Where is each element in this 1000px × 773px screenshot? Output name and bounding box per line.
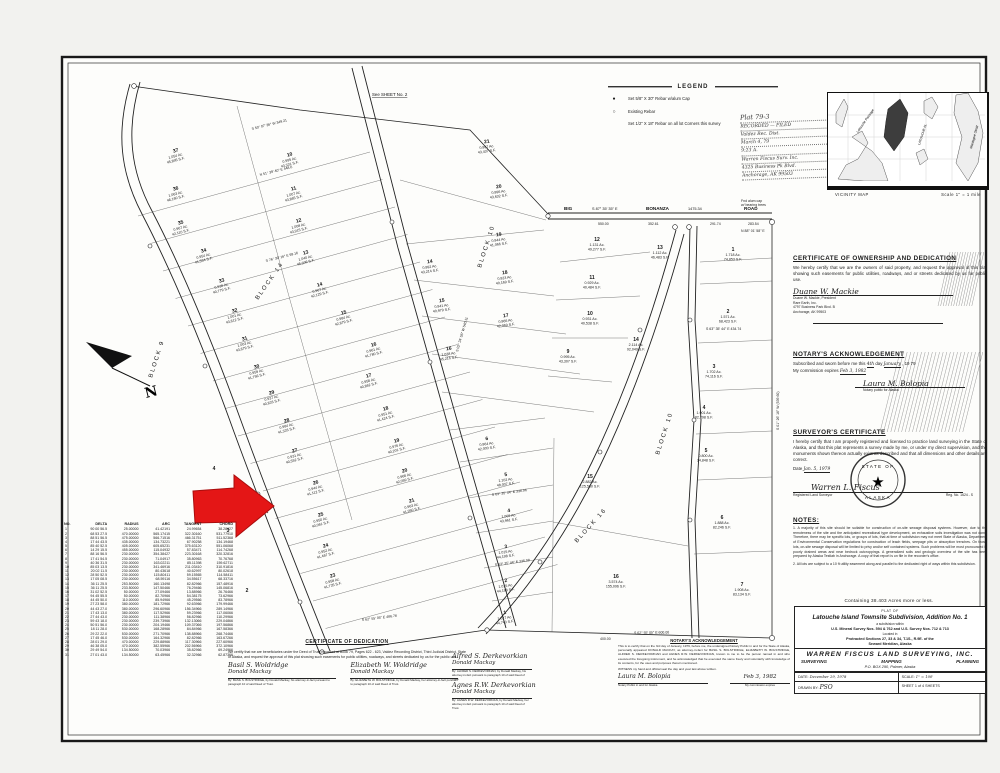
lot-square-feet: 43,307 S.F.: [559, 359, 577, 363]
date-label: Date: [793, 466, 802, 471]
curve-cell: 134.50000: [108, 653, 139, 657]
date-label: DATE:: [798, 675, 809, 679]
lot-square-feet: 34,848 S.F.: [697, 458, 715, 462]
lot-acreage: 0.800 Ac.: [699, 454, 714, 458]
bearing-label: 283.54: [748, 222, 759, 226]
legend-item: ● Set 5/8" X 30" Rebar w/alum Cap: [608, 96, 778, 103]
signer-line: Anchorage, AK 99503: [793, 310, 987, 314]
signature-typed-caption: By: ELIZABETH W. BOLSTRIDGE, by Donald M…: [350, 679, 458, 687]
lot-label: 2: [246, 588, 249, 594]
signature: Laura M. Bolopia: [863, 379, 987, 388]
lot-acreage: 2.114 Ac.: [629, 343, 644, 347]
acreage-note: Containing 38.403 Acres more or less.: [793, 598, 985, 603]
lot-square-feet: 82,798 S.F.: [695, 415, 713, 419]
lot-acreage: 0.931 Ac.: [583, 317, 598, 321]
meridian-line: Seward Meridian, Alaska: [797, 642, 983, 646]
section-title: NOTES:: [793, 517, 987, 524]
curve-cell: 32.32966: [171, 653, 202, 657]
lot-square-feet: 83,134 S.F.: [733, 592, 751, 596]
section-title: CERTIFICATE OF DEDICATION: [305, 639, 388, 645]
notary-text: Subscribed and sworn before me this: [793, 361, 865, 366]
curve-data-table: NO. DELTA RADIUS ARC TANGENT CHORD 190 0…: [64, 522, 234, 657]
lot-square-feet: 74,853 S.F.: [724, 257, 742, 261]
curve-cell: 31: [64, 653, 77, 657]
signature: Donald Mackay: [452, 660, 532, 666]
lot-square-feet: 155,096 S.F.: [606, 584, 626, 588]
signature-block: Elizabeth W. Woldridge Donald Mackay By:…: [350, 661, 458, 687]
lot-acreage: 1.718 Ac.: [726, 253, 741, 257]
lot-acreage: 3.574 Ac.: [609, 580, 624, 584]
certificate-of-dedication: CERTIFICATE OF DEDICATION We certify tha…: [228, 630, 466, 687]
notary-expiry: Feb 3, 1982: [840, 369, 866, 375]
signature: Laura M. Bolopia: [618, 673, 708, 680]
signature-caption: Notary Public in and for Alaska: [618, 684, 708, 688]
notary-day: 4th: [867, 362, 874, 368]
lot-acreage: 1.112 Ac.: [653, 251, 668, 255]
signature-caption: Notary public for Alaska: [863, 388, 987, 392]
lot-square-feet: 49,277 S.F.: [588, 247, 606, 251]
bearing-label: 400.00: [600, 637, 611, 641]
bearing-label: S 62° 55' 05" E 600.00: [634, 630, 669, 635]
lot-square-feet: 46,483 S.F.: [651, 255, 669, 259]
bearing-label: N 88° 01' 58" E: [741, 229, 765, 233]
legend-title: LEGEND: [608, 84, 778, 90]
drawn-by-value: PSO: [820, 684, 833, 691]
section-title: SURVEYOR'S CERTIFICATE: [793, 429, 987, 436]
firm-address: P.O. BOX 290, Palmer, Alaska: [797, 665, 983, 669]
passage-label: Latouche Passage: [856, 108, 875, 133]
signature-typed-caption: By: BASIL S. BOLSTRIDGE, by Donald Macka…: [228, 679, 336, 687]
date-value: December 29, 1978: [810, 675, 847, 679]
notary-year: , 19 79: [902, 361, 915, 366]
legend-item-label: Set 1/2" X 18" Rebar on all lot Corners …: [628, 121, 738, 126]
expiry-caption: My commission expires: [730, 684, 790, 688]
bearing-label: S 63° 35' 44" E 434.74: [706, 327, 741, 331]
located-label: Located in: [797, 632, 983, 636]
lot-square-feet: 82,246 S.F.: [713, 525, 731, 529]
section-title: CERTIFICATE OF OWNERSHIP AND DEDICATION: [793, 255, 987, 262]
lot-acreage: 1.571 Ac.: [721, 315, 736, 319]
notes-section: NOTES: 1. A majority of this site should…: [793, 517, 987, 567]
curve-cell: 63.45966: [140, 653, 171, 657]
filled-circle-icon: ●: [608, 96, 620, 103]
vicinity-map: Latouche Passage LATOUCHE IS. Montague S…: [827, 92, 989, 197]
vicinity-map-frame: Latouche Passage LATOUCHE IS. Montague S…: [827, 92, 989, 190]
bearing-label: S 01° 26' 16" W (539.60): [776, 391, 780, 430]
signature-block: Agnes R.W. Derkevorkian Donald Mackay By…: [452, 681, 532, 710]
signature: Donald Mackay: [452, 689, 532, 695]
signature: Donald Mackay: [228, 669, 336, 675]
sheet-number: SHEET 1: [902, 684, 917, 688]
svg-text:BIG: BIG: [564, 206, 573, 211]
lot-acreage: 0.995 Ac.: [561, 355, 576, 359]
bearing-label: w/ bearing trees: [741, 203, 766, 207]
open-circle-icon: ○: [608, 109, 620, 116]
legend-item-label: Set 5/8" X 30" Rebar w/alum Cap: [628, 96, 690, 103]
signature-typed-caption: By: AGNES R.W. DERKEVORKIAN, by Donald M…: [452, 699, 532, 710]
svg-text:S 87° 35' 35" E: S 87° 35' 35" E: [592, 207, 618, 211]
lot-square-feet: 92,049 S.F.: [627, 347, 645, 351]
lot-acreage: 1.131 Ac.: [590, 243, 605, 247]
witness-line: WITNESS my hand and official seal the da…: [618, 667, 790, 671]
service-label: PLANNING: [956, 659, 979, 664]
lot-square-feet: 125,560 S.F.: [580, 484, 600, 488]
certificate-of-ownership: CERTIFICATE OF OWNERSHIP AND DEDICATION …: [793, 255, 987, 324]
vicinity-caption: VICINITY MAP: [835, 192, 869, 197]
notary-text: My commission expires: [793, 368, 839, 373]
note-item: 1. A majority of this site should be sui…: [793, 526, 987, 559]
title-block: PLAT OF Latouche Island Townsite Subdivi…: [794, 606, 986, 694]
notary-month: January: [884, 362, 901, 368]
lot-square-feet: 40,484 S.F.: [583, 285, 601, 289]
scale-label: SCALE:: [902, 675, 915, 679]
drawn-by-label: DRAWN BY:: [798, 686, 819, 690]
lot-square-feet: 74,116 S.F.: [705, 374, 723, 378]
notary-text: day: [875, 361, 882, 366]
date-value: Jan. 5, 1979: [804, 467, 831, 473]
signature: Elizabeth W. Woldridge: [350, 661, 458, 669]
section-body: I hereby certify that I am properly regi…: [793, 439, 987, 464]
plat-of-label: PLAT OF: [797, 609, 983, 613]
lot-acreage: 1.702 Ac.: [707, 370, 722, 374]
section-title: NOTARY'S ACKNOWLEDGEMENT: [793, 351, 987, 358]
lot-acreage: 1.908 Ac.: [735, 588, 750, 592]
lot-square-feet: 68,423 S.F.: [719, 319, 737, 323]
bearing-label: 352.61: [648, 222, 659, 226]
subdivision-sub: a subdivision within: [797, 622, 983, 626]
signature: Agnes R.W. Derkevorkian: [452, 681, 532, 689]
lot-square-feet: 40,538 S.F.: [581, 321, 599, 325]
note-item: 2. All lots are subject to a 10 ft utili…: [793, 562, 987, 567]
lot-acreage: 1.901 Ac.: [697, 411, 712, 415]
dedication-signatures-2: Alfred S. Derkevorkian Donald Mackay By:…: [452, 652, 622, 711]
lot-label: 4: [213, 466, 216, 472]
curve-cell: 27 01 43.0: [77, 653, 108, 657]
surveyors-certificate: SURVEYOR'S CERTIFICATE I hereby certify …: [793, 429, 987, 497]
recording-stamp: Plat 79-3 RECORDED — FILED Valdez Rec. D…: [740, 109, 834, 180]
signature-block: Basil S. Woldridge Donald Mackay By: BAS…: [228, 661, 336, 687]
vicinity-map-graphic: Latouche Passage LATOUCHE IS. Montague S…: [828, 93, 985, 181]
notary-acknowledgement-1: NOTARY'S ACKNOWLEDGEMENT Subscribed and …: [793, 351, 987, 393]
section-body: We certify that we are beneficiaries und…: [228, 650, 466, 659]
signature: Donald Mackay: [350, 669, 458, 675]
legend-item-label: Existing Rebar: [628, 109, 655, 116]
curve-row: 3127 01 43.0134.5000063.4596632.3296662.…: [64, 653, 234, 657]
svg-text:BONANZA: BONANZA: [646, 206, 670, 211]
scanned-plat-sheet: { "map": { "see_sheet": "See SHEET No. 2…: [0, 0, 1000, 773]
sections-line: Protracted Sections 27, 33 & 34, T.1S., …: [797, 637, 983, 641]
signature-block: Alfred S. Derkevorkian Donald Mackay By:…: [452, 652, 532, 681]
service-label: SURVEYING: [801, 659, 827, 664]
bearing-label: 291.74: [710, 222, 721, 226]
section-title: NOTARY'S ACKNOWLEDGEMENT: [618, 638, 790, 643]
notary-acknowledgement-2: NOTARY'S ACKNOWLEDGEMENT This is to cert…: [618, 638, 790, 688]
svg-text:1475.34: 1475.34: [688, 207, 702, 211]
bearing-label: 550.00: [598, 222, 609, 226]
expiry-date: Feb 3, 1982: [730, 674, 790, 680]
firm-name: WARREN FISCUS LAND SURVEYING, INC.: [797, 651, 983, 658]
lot-acreage: 0.929 Ac.: [585, 281, 600, 285]
subdivision-name: Latouche Island Townsite Subdivision, Ad…: [797, 614, 983, 621]
reg-number: Reg. No. 1624 - S: [946, 493, 973, 497]
sheet-total: of 4 SHEETS: [918, 684, 940, 688]
signature-typed-caption: By: ALFRED S. DERKEVORKIAN, by Donald Ma…: [452, 670, 532, 681]
lot-acreage: 1.888 Ac.: [715, 521, 730, 525]
reg-caption: Registered Land Surveyor: [793, 493, 832, 497]
see-sheet-note: See SHEET No. 2: [372, 92, 408, 97]
section-body: This is to certify that on the 3rd day o…: [618, 644, 790, 665]
scale-value: 1" = 100': [916, 675, 934, 679]
vicinity-scale: Scale 1" = 1 mile: [941, 192, 981, 197]
lot-acreage: 2.882 Ac.: [583, 480, 598, 484]
survey-numbers: U.S. Mineral Survey Nos. 594 & 762 and U…: [797, 627, 983, 631]
service-label: MAPPING: [881, 659, 902, 664]
blank-symbol: [608, 121, 620, 126]
signature: Basil S. Woldridge: [228, 661, 336, 669]
signature: Alfred S. Derkevorkian: [452, 652, 532, 660]
section-body: We hereby certify that we are the owners…: [793, 265, 987, 283]
